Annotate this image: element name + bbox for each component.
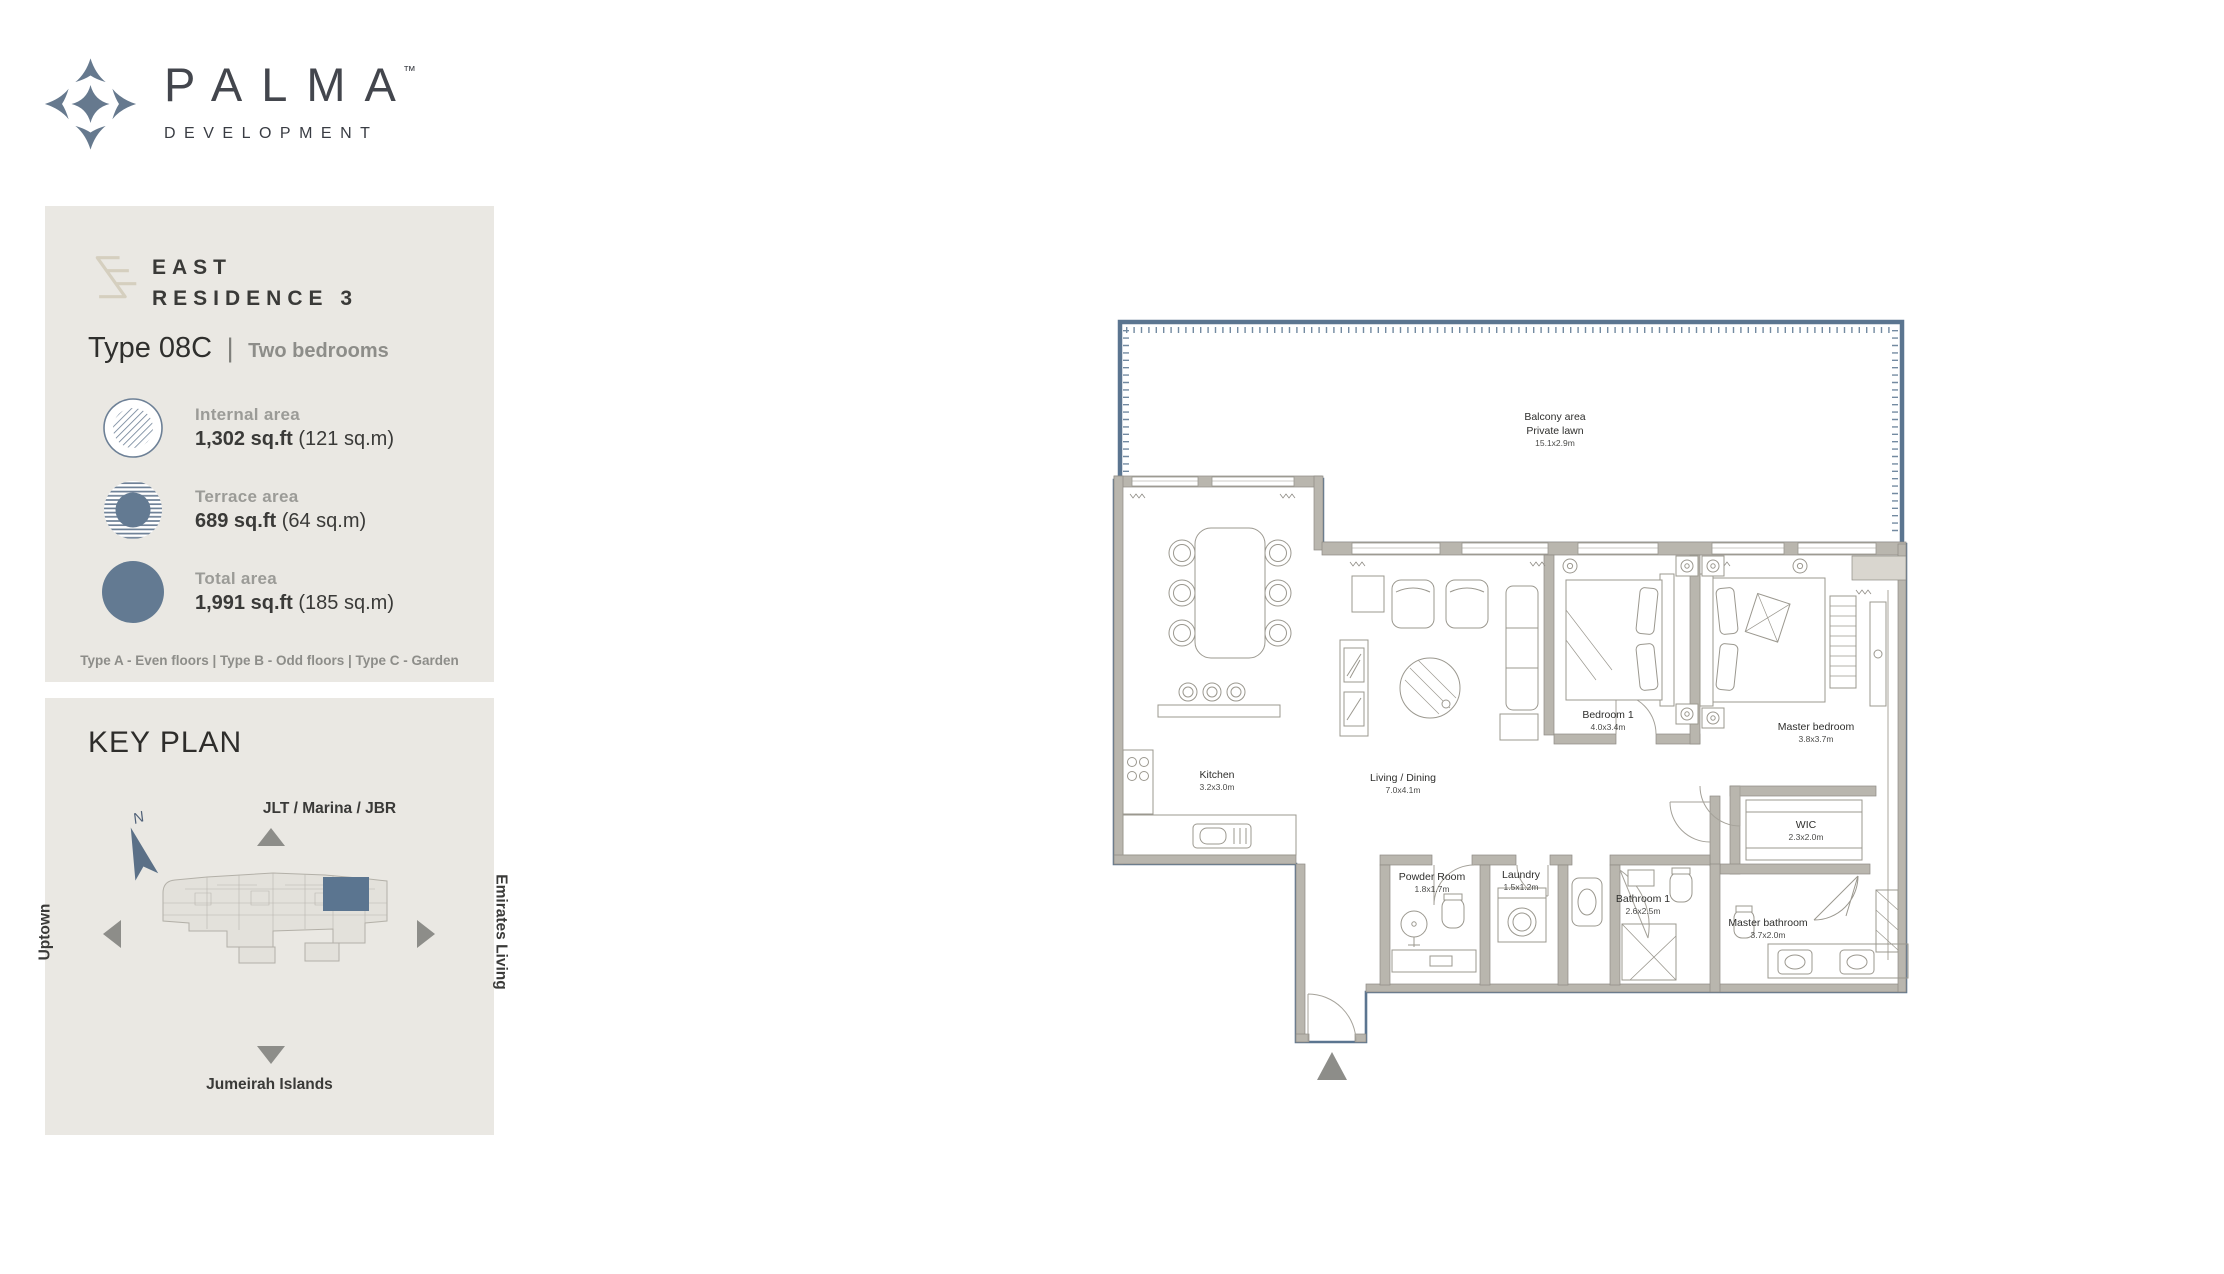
living-label: Living / Dining <box>1370 772 1436 784</box>
east-mark-icon <box>88 254 140 306</box>
laundry-fixtures <box>1498 888 1546 942</box>
area-label: Total area <box>195 569 394 589</box>
brand-subtitle: DEVELOPMENT <box>164 125 416 143</box>
triangle-down-icon <box>257 1046 285 1064</box>
floor-type-note: Type A - Even floors | Type B - Odd floo… <box>45 653 494 668</box>
living-dims: 7.0x4.1m <box>1386 785 1421 795</box>
bathroom1-dims: 2.6x2.5m <box>1626 906 1661 916</box>
direction-label-uptown: Uptown <box>36 904 54 961</box>
laundry-dims: 1.5x1.2m <box>1504 882 1539 892</box>
building-footprint <box>155 863 395 998</box>
key-plan-title: KEY PLAN <box>88 726 242 760</box>
brand-name: PALMA™ <box>164 61 416 108</box>
direction-label-jlt: JLT / Marina / JBR <box>45 800 494 818</box>
bathroom1-label: Bathroom 1 <box>1616 893 1670 905</box>
direction-label-jumeirah: Jumeirah Islands <box>45 1076 494 1094</box>
area-label: Internal area <box>195 405 394 425</box>
area-row-total: Total area 1,991 sq.ft (185 sq.m) <box>101 560 394 624</box>
residence-name: RESIDENCE 3 <box>152 283 358 314</box>
hatched-circle-icon <box>101 396 165 460</box>
type-separator: | <box>227 333 234 363</box>
compass-star-icon <box>43 55 138 153</box>
balcony-label: Balcony area <box>1524 411 1585 423</box>
key-plan-panel: KEY PLAN N JLT / Marina / JBR Uptown Emi… <box>45 698 494 1135</box>
bedroom1-dims: 4.0x3.4m <box>1591 722 1626 732</box>
area-label: Terrace area <box>195 487 366 507</box>
info-panel: EAST RESIDENCE 3 Type 08C | Two bedrooms <box>45 206 494 682</box>
master-bathroom-dims: 3.7x2.0m <box>1751 930 1786 940</box>
wic-label: WIC <box>1796 819 1817 831</box>
area-value: 1,302 sq.ft (121 sq.m) <box>195 428 394 451</box>
kitchen-dims: 3.2x3.0m <box>1200 782 1235 792</box>
area-value: 1,991 sq.ft (185 sq.m) <box>195 592 394 615</box>
balcony-label2: Private lawn <box>1526 425 1583 437</box>
master-bedroom-dims: 3.8x3.7m <box>1799 734 1834 744</box>
kitchen-label: Kitchen <box>1199 769 1234 781</box>
balcony-dims: 15.1x2.9m <box>1535 438 1575 448</box>
powder-room-label: Powder Room <box>1399 871 1466 883</box>
triangle-left-icon <box>103 920 121 948</box>
laundry-label: Laundry <box>1502 869 1541 881</box>
unit-type: Type 08C | Two bedrooms <box>88 332 389 365</box>
striped-circle-icon <box>101 478 165 542</box>
highlighted-unit <box>323 877 369 911</box>
trademark: ™ <box>403 63 416 78</box>
bedroom1-label: Bedroom 1 <box>1582 709 1634 721</box>
area-row-internal: Internal area 1,302 sq.ft (121 sq.m) <box>101 396 394 460</box>
area-value: 689 sq.ft (64 sq.m) <box>195 510 366 533</box>
triangle-right-icon <box>417 920 435 948</box>
direction-label-emirates: Emirates Living <box>492 874 510 989</box>
entry-marker-triangle <box>1317 1052 1347 1080</box>
brochure-page: PALMA™ DEVELOPMENT EAST RESIDENCE 3 Type… <box>0 0 2224 1274</box>
triangle-up-icon <box>257 828 285 846</box>
solid-circle-icon <box>101 560 165 624</box>
powder-room-dims: 1.8x1.7m <box>1415 884 1450 894</box>
master-bathroom-label: Master bathroom <box>1728 917 1808 929</box>
floor-plan: Balcony area Private lawn 15.1x2.9m Kitc… <box>1100 310 1920 1090</box>
project-name: EAST <box>152 252 358 283</box>
area-row-terrace: Terrace area 689 sq.ft (64 sq.m) <box>101 478 366 542</box>
bedrooms-label: Two bedrooms <box>248 340 389 362</box>
wic-dims: 2.3x2.0m <box>1789 832 1824 842</box>
residence-header: EAST RESIDENCE 3 <box>88 252 358 314</box>
type-label: Type 08C <box>88 332 212 364</box>
brand-logo: PALMA™ DEVELOPMENT <box>43 55 416 153</box>
master-bedroom-label: Master bedroom <box>1778 721 1855 733</box>
